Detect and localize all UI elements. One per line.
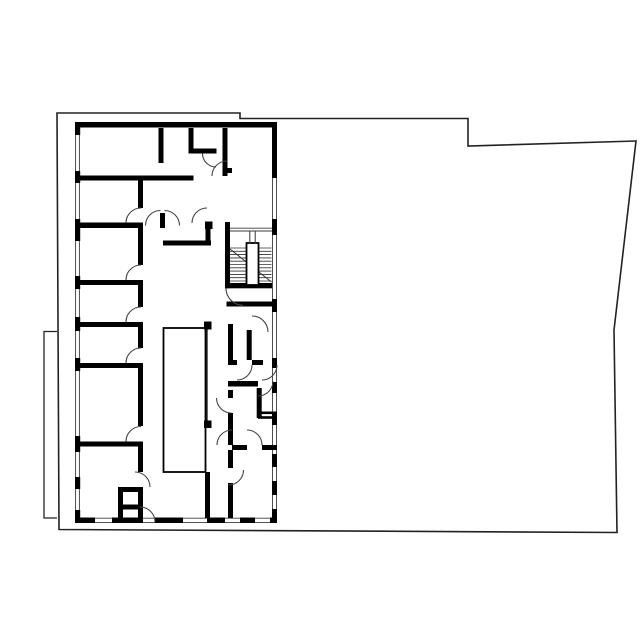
parcel-outline-segment [44,332,57,519]
walls-segment [75,276,80,289]
walls-segment [118,487,143,492]
walls-segment [262,445,277,450]
walls-segment [80,280,143,285]
walls-segment [138,327,143,348]
door-arcs-segment [247,430,262,445]
walls-segment [75,518,95,524]
walls-segment [272,358,277,368]
walls-segment [272,454,277,467]
door-arcs-segment [217,398,232,413]
walls-segment [75,219,80,241]
walls-segment [163,241,211,246]
walls-segment [272,481,277,495]
walls [75,122,277,523]
walls-segment [80,223,143,229]
door-arcs-segment [126,265,141,280]
walls-segment [159,128,164,163]
walls-segment [75,436,80,452]
walls-segment [75,510,80,518]
walls-segment [228,413,233,445]
walls-segment [228,360,237,365]
walls-segment [228,483,233,518]
walls-segment [225,222,230,288]
door-arcs-segment [146,211,161,226]
walls-segment [75,358,80,371]
floor-plan-canvas [0,0,640,640]
walls-segment [270,518,277,524]
walls-segment [240,518,255,524]
walls-segment [205,222,213,230]
walls-segment [138,181,143,209]
walls-segment [75,477,80,489]
walls-segment [258,412,277,415]
floor-plan-drawing [0,0,640,640]
walls-segment [228,450,233,468]
walls-segment [75,122,80,135]
walls-segment [207,518,225,524]
walls-segment [232,445,247,450]
door-arcs-segment [192,208,207,223]
walls-segment [223,128,228,176]
walls-segment [80,363,143,368]
door-arcs-segment [165,211,180,226]
door-arcs [126,154,277,523]
walls-segment [164,328,206,472]
door-arcs-segment [126,307,141,322]
walls-segment [75,171,80,183]
walls-segment [228,390,233,398]
door-arcs-segment [229,470,244,485]
door-arcs-segment [135,472,150,487]
walls-segment [272,219,277,235]
walls-segment [80,442,143,447]
walls-segment [205,472,210,518]
walls-segment [138,447,143,473]
door-arcs-segment [252,316,268,332]
walls-segment [190,149,217,154]
walls-segment [138,285,143,307]
walls-segment [138,228,143,265]
walls-segment [258,416,277,419]
door-arcs-segment [126,208,141,223]
walls-segment [247,330,252,360]
walls-segment [272,509,277,518]
walls-segment [80,322,143,327]
stairs-segment [247,243,259,285]
door-arcs-segment [203,154,217,168]
door-arcs-segment [126,348,141,363]
walls-segment [228,168,233,173]
walls-segment [138,368,143,426]
walls-segment [272,122,277,178]
walls-segment [228,381,258,387]
door-arcs-segment [237,365,252,380]
walls-segment [75,317,80,331]
walls-segment [155,518,183,524]
walls-segment [75,122,277,128]
walls-segment [160,213,165,228]
door-arcs-segment [126,427,141,442]
stairs [230,232,272,286]
walls-segment [252,360,263,365]
walls-segment [118,505,143,510]
walls-segment [80,176,194,181]
walls-segment [228,324,233,365]
